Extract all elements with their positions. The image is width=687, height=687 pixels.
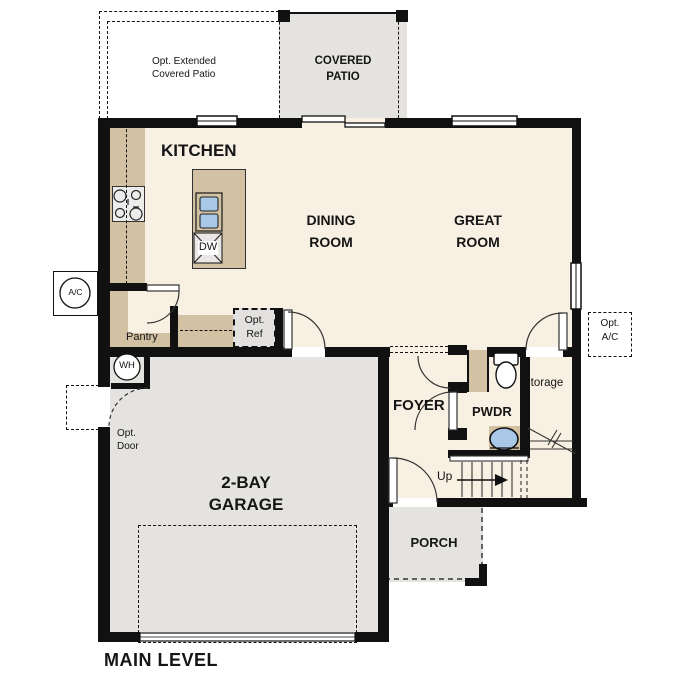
wall-segment — [520, 347, 530, 458]
opt-extended-patio-label: Opt. Extended Covered Patio — [152, 55, 216, 81]
ac-unit-label: A/C — [60, 288, 91, 298]
storage-door-opening — [526, 347, 563, 357]
wall-segment — [275, 308, 283, 350]
kitchen-label: KITCHEN — [161, 141, 237, 161]
porch-post — [465, 578, 487, 586]
opt-door-label: Opt. Door — [117, 428, 139, 453]
porch-label: PORCH — [395, 536, 473, 551]
toilet — [494, 353, 518, 388]
garage-door-panel — [140, 633, 355, 641]
floor-plan: KITCHEN DINING ROOM GREAT ROOM 2-BAY GAR… — [0, 0, 687, 687]
wall-segment — [378, 347, 389, 642]
wall-segment — [98, 283, 147, 291]
opt-door-swing — [109, 388, 148, 427]
staircase — [450, 456, 528, 498]
wall-segment — [98, 347, 390, 357]
island-sink — [196, 193, 222, 231]
pwdr-label: PWDR — [472, 405, 512, 420]
dining-label: DINING ROOM — [291, 210, 371, 253]
floorplan-linework — [0, 0, 687, 687]
foyer-closet-door — [418, 356, 450, 388]
wall-segment — [448, 345, 467, 355]
covered-patio-label: COVERED PATIO — [293, 54, 393, 85]
dishwasher-label: DW — [195, 241, 221, 254]
wall-segment — [448, 382, 467, 393]
window — [571, 263, 581, 309]
garage-entry-door — [284, 310, 325, 349]
water-heater-label: WH — [114, 361, 140, 372]
opt-door-opening — [98, 387, 110, 427]
sliding-patio-door — [302, 116, 385, 128]
up-label: Up — [437, 470, 452, 484]
upper-stair-run — [528, 428, 576, 454]
opt-ac-label: Opt. A/C — [588, 317, 632, 344]
pantry-label: Pantry — [126, 331, 158, 344]
front-door — [389, 458, 437, 503]
garage-door-opening — [292, 347, 325, 357]
storage-door — [526, 313, 567, 350]
opt-ref-label: Opt. Ref — [233, 313, 276, 341]
patio-post — [278, 10, 290, 22]
foyer-label: FOYER — [393, 397, 445, 414]
stove-burners — [114, 190, 142, 220]
garage-label: 2-BAY GARAGE — [196, 472, 296, 516]
pwdr-sink — [490, 428, 519, 450]
window — [197, 116, 237, 126]
plan-title: MAIN LEVEL — [104, 650, 218, 671]
great-room-label: GREAT ROOM — [438, 210, 518, 253]
window — [452, 116, 517, 126]
wall-segment — [98, 118, 110, 642]
wall-segment — [572, 118, 581, 507]
storage-label: Storage — [523, 377, 563, 390]
patio-post — [396, 10, 408, 22]
front-door-opening — [393, 498, 437, 507]
